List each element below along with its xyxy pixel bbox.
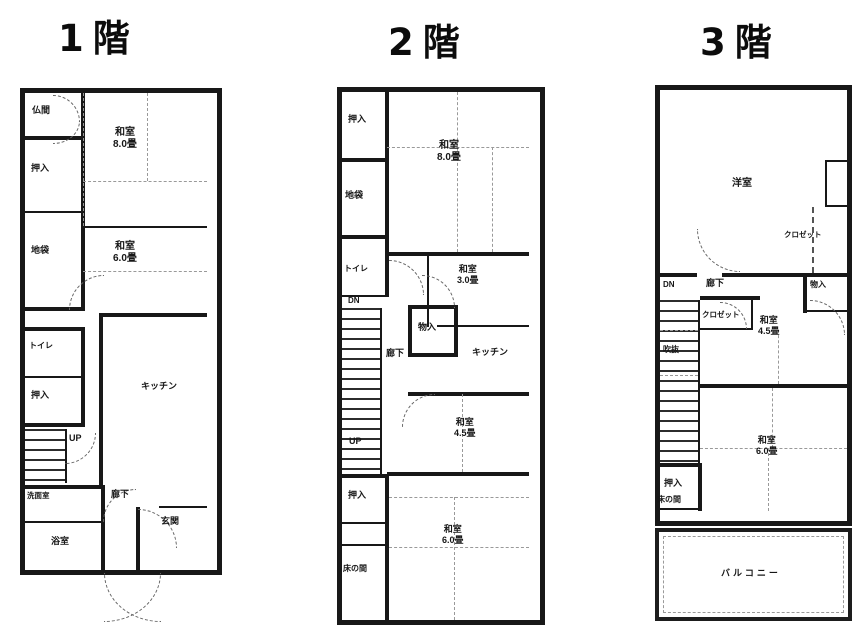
- room-size: 4.5畳: [454, 428, 476, 438]
- room-label-hallway: 廊下: [706, 278, 724, 289]
- tatami-line: [147, 93, 148, 181]
- room-label-kitchen: キッチン: [141, 381, 177, 392]
- wall-segment: [698, 465, 702, 511]
- wall-segment: [101, 485, 105, 570]
- wall-segment: [25, 211, 83, 213]
- wall-segment: [159, 506, 207, 508]
- room-label-toilet: トイレ: [344, 264, 368, 274]
- wall-segment: [25, 485, 105, 489]
- room-label-washitsu-45: 和室 4.5畳: [454, 417, 476, 439]
- room-size: 6.0畳: [756, 446, 778, 456]
- room-label-oshiire-2: 押入: [31, 390, 49, 401]
- tatami-line: [389, 497, 529, 498]
- door-arc: [53, 95, 80, 122]
- room-label-monoire: 物入: [810, 280, 826, 290]
- wall-segment: [410, 353, 458, 357]
- wall-segment: [99, 313, 207, 317]
- room-label-jibukuro: 地袋: [345, 190, 363, 201]
- wall-segment: [825, 205, 847, 207]
- floor-title-3: 3階: [700, 12, 781, 66]
- balcony-area: バルコニー: [655, 528, 852, 621]
- wall-segment: [25, 423, 83, 427]
- room-size: 4.5畳: [758, 326, 780, 336]
- stairs: [25, 429, 65, 483]
- stairs-dn-label: DN: [663, 280, 675, 290]
- room-size: 3.0畳: [457, 275, 479, 285]
- stairs-dn-label: DN: [348, 296, 360, 306]
- floor-plan-3: 洋室 クロゼット DN 廊下 物入 クロゼット 和室 4.5畳 吹抜 押入 和室…: [655, 85, 852, 526]
- room-label-butsuma: 仏間: [32, 105, 50, 116]
- tatami-line: [492, 147, 493, 252]
- room-label-tokonoma: 床の間: [343, 564, 367, 574]
- room-label-washitsu-45: 和室 4.5畳: [758, 315, 780, 337]
- wall-segment: [722, 273, 847, 277]
- wall-segment: [342, 544, 389, 546]
- tatami-line: [454, 497, 455, 620]
- tatami-line: [83, 93, 84, 226]
- tatami-line: [660, 375, 698, 376]
- wall-segment: [380, 308, 382, 476]
- floor-plan-1: 仏間 押入 地袋 和室 8.0畳 和室 6.0畳 トイレ 押入 UP キッチン …: [20, 88, 222, 575]
- door-arc: [389, 260, 424, 295]
- room-label-jibukuro: 地袋: [31, 245, 49, 256]
- floorplan-image: 1階 2階 3階: [0, 0, 861, 629]
- wall-segment: [25, 376, 83, 378]
- room-label-monoire: 物入: [418, 322, 436, 333]
- wall-segment: [825, 160, 847, 162]
- room-label-hallway: 廊下: [111, 489, 129, 500]
- tatami-line: [457, 92, 458, 252]
- door-arc: [697, 229, 740, 272]
- room-name: 和室: [459, 264, 477, 274]
- room-name: 和室: [444, 524, 462, 534]
- wall-segment: [751, 298, 753, 330]
- room-label-washroom: 洗面室: [27, 491, 50, 500]
- room-label-washitsu-3: 和室 3.0畳: [457, 264, 479, 286]
- door-arc: [138, 509, 177, 548]
- wall-segment: [698, 300, 700, 465]
- door-arc: [422, 275, 455, 308]
- tatami-line: [389, 547, 529, 548]
- room-size: 6.0畳: [442, 535, 464, 545]
- room-name: 和室: [115, 127, 135, 138]
- room-label-kitchen: キッチン: [472, 347, 508, 358]
- wall-segment: [342, 158, 389, 162]
- room-name: 和室: [456, 417, 474, 427]
- wall-segment: [454, 305, 458, 357]
- room-label-washitsu-6: 和室 6.0畳: [756, 435, 778, 457]
- wall-segment: [342, 235, 389, 239]
- wall-segment: [342, 522, 389, 524]
- closet-accordion-door: [812, 207, 814, 273]
- stairs-up-label: UP: [349, 436, 362, 447]
- room-label-oshiire: 押入: [348, 114, 366, 125]
- wall-segment: [387, 472, 529, 476]
- tatami-line: [83, 271, 207, 272]
- room-label-washitsu-6: 和室 6.0畳: [113, 241, 137, 265]
- tatami-line: [778, 330, 779, 384]
- room-size: 8.0畳: [437, 152, 461, 163]
- room-label-balcony: バルコニー: [721, 568, 781, 579]
- room-label-washitsu-8: 和室 8.0畳: [437, 140, 461, 164]
- stairs: [660, 300, 698, 465]
- wall-segment: [342, 474, 389, 478]
- room-label-entrance: 玄関: [161, 516, 179, 527]
- wall-segment: [803, 273, 807, 313]
- floor-title-1: 1階: [58, 8, 139, 62]
- wall-segment: [25, 327, 83, 331]
- room-label-oshiire: 押入: [31, 163, 49, 174]
- room-label-hallway: 廊下: [386, 348, 404, 359]
- wall-segment: [660, 463, 702, 467]
- wall-segment: [437, 325, 529, 327]
- room-size: 8.0畳: [113, 139, 137, 150]
- stairs: [342, 308, 380, 476]
- room-label-oshiire-2: 押入: [348, 490, 366, 501]
- door-arc: [69, 275, 104, 310]
- tatami-line: [660, 330, 698, 331]
- door-arc: [402, 394, 435, 427]
- wall-segment: [660, 508, 702, 510]
- door-arc: [53, 121, 80, 144]
- wall-segment: [99, 313, 103, 487]
- room-label-washitsu-8: 和室 8.0畳: [113, 127, 137, 151]
- wall-segment: [825, 160, 827, 207]
- room-label-fukinuke: 吹抜: [663, 345, 679, 355]
- stairs-up-label: UP: [69, 433, 82, 444]
- room-label-toilet: トイレ: [29, 341, 53, 351]
- room-name: 和室: [115, 241, 135, 252]
- room-label-bath: 浴室: [51, 536, 69, 547]
- floor-title-2: 2階: [388, 12, 469, 66]
- room-label-youshitsu: 洋室: [732, 178, 752, 190]
- tatami-line: [83, 181, 207, 182]
- room-label-oshiire: 押入: [664, 478, 682, 489]
- room-size: 6.0畳: [113, 253, 137, 264]
- wall-segment: [408, 305, 412, 357]
- room-name: 和室: [439, 140, 459, 151]
- room-label-tokonoma: 床の間: [657, 495, 681, 505]
- wall-segment: [25, 521, 103, 523]
- wall-segment: [700, 384, 847, 388]
- room-label-closet-2: クロゼット: [702, 310, 740, 319]
- room-label-closet: クロゼット: [784, 230, 822, 239]
- floor-plan-2: 押入 和室 8.0畳 地袋 トイレ DN 廊下 物入 和室 3.0畳 キッチン …: [337, 87, 545, 625]
- wall-segment: [660, 273, 697, 277]
- room-name: 和室: [758, 435, 776, 445]
- tatami-line: [768, 448, 769, 511]
- door-arc: [810, 300, 845, 335]
- wall-segment: [387, 252, 529, 256]
- room-name: 和室: [760, 315, 778, 325]
- room-label-washitsu-6: 和室 6.0畳: [442, 524, 464, 546]
- wall-segment: [83, 226, 207, 228]
